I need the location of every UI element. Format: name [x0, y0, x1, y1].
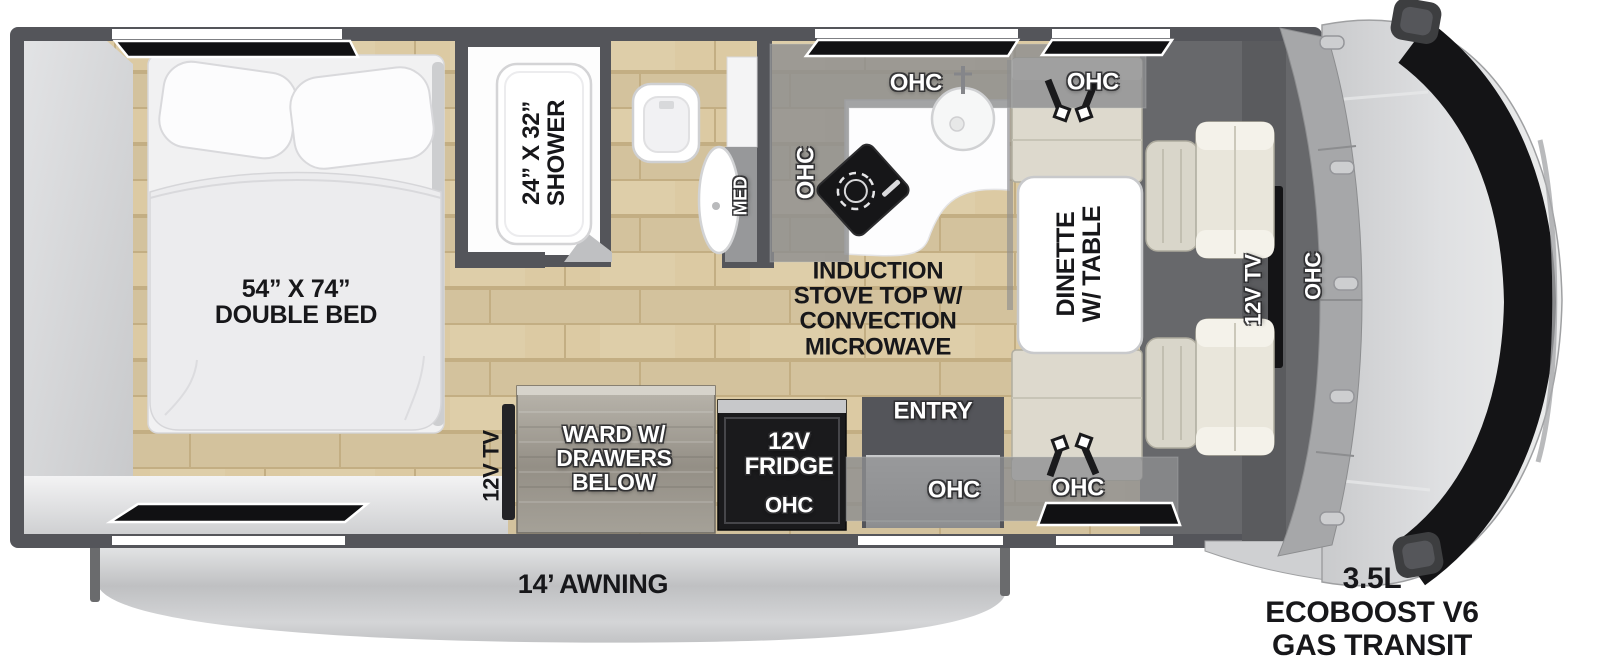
entry-door-window	[1038, 503, 1180, 525]
dinette-table	[1018, 177, 1142, 353]
bedroom-tv	[502, 404, 515, 520]
rv-floorplan: 54” X 74” DOUBLE BED 24” X 32” SHOWER ME…	[0, 0, 1600, 659]
dinette	[1007, 58, 1142, 480]
cab-seat-driver	[1146, 122, 1274, 258]
wardrobe	[517, 386, 715, 533]
toilet	[633, 84, 699, 162]
kitchen-window	[806, 40, 1018, 56]
bedroom-window	[115, 41, 358, 57]
fridge	[718, 400, 846, 530]
pillow	[287, 64, 437, 172]
floorplan-drawing	[0, 0, 1600, 659]
pillow	[156, 58, 301, 162]
bedroom-window-rear	[110, 504, 367, 522]
dinette-window	[1042, 40, 1172, 55]
double-bed	[148, 55, 444, 433]
cab-seat-passenger	[1146, 319, 1274, 455]
rear-wall-panel	[24, 41, 133, 534]
duvet	[150, 173, 441, 431]
awning	[90, 540, 1010, 643]
